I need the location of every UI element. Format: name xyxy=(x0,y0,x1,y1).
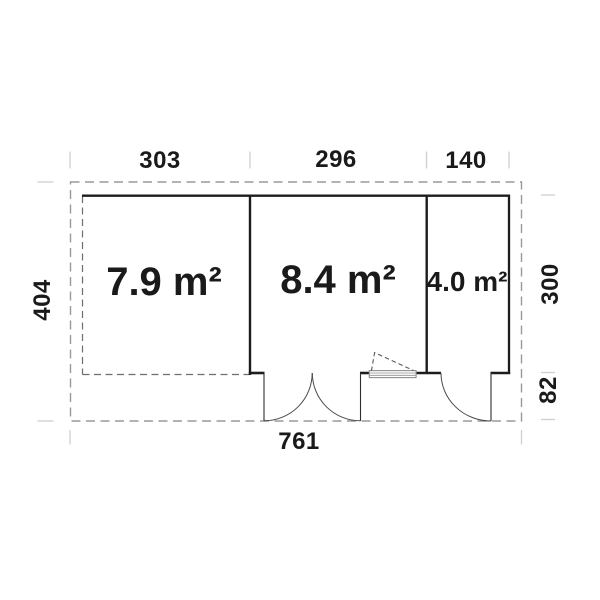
single-door-swing-arc xyxy=(441,373,491,421)
window-sill xyxy=(369,371,416,378)
room-area-main-room: 8.4 m² xyxy=(280,260,396,300)
dim-top-left-width: 303 xyxy=(139,149,181,173)
dim-total-width: 761 xyxy=(278,430,320,454)
window-opening-dashes xyxy=(371,353,413,371)
room-area-side-room: 4.0 m² xyxy=(427,268,508,296)
double-door-right-swing-arc xyxy=(312,373,360,421)
dim-top-right-width: 140 xyxy=(445,149,487,173)
dim-top-middle-width: 296 xyxy=(315,148,357,172)
double-door-left-swing-arc xyxy=(264,373,312,421)
room-area-terrace: 7.9 m² xyxy=(106,262,222,302)
window xyxy=(369,353,416,378)
dim-right-front-depth: 82 xyxy=(537,376,561,404)
double-door xyxy=(264,373,361,421)
single-door xyxy=(441,373,491,421)
dim-left-depth: 404 xyxy=(31,279,55,321)
floor-plan-canvas: 303 296 140 404 300 82 761 7.9 m² 8.4 m²… xyxy=(0,0,600,600)
dim-right-depth: 300 xyxy=(539,263,563,305)
